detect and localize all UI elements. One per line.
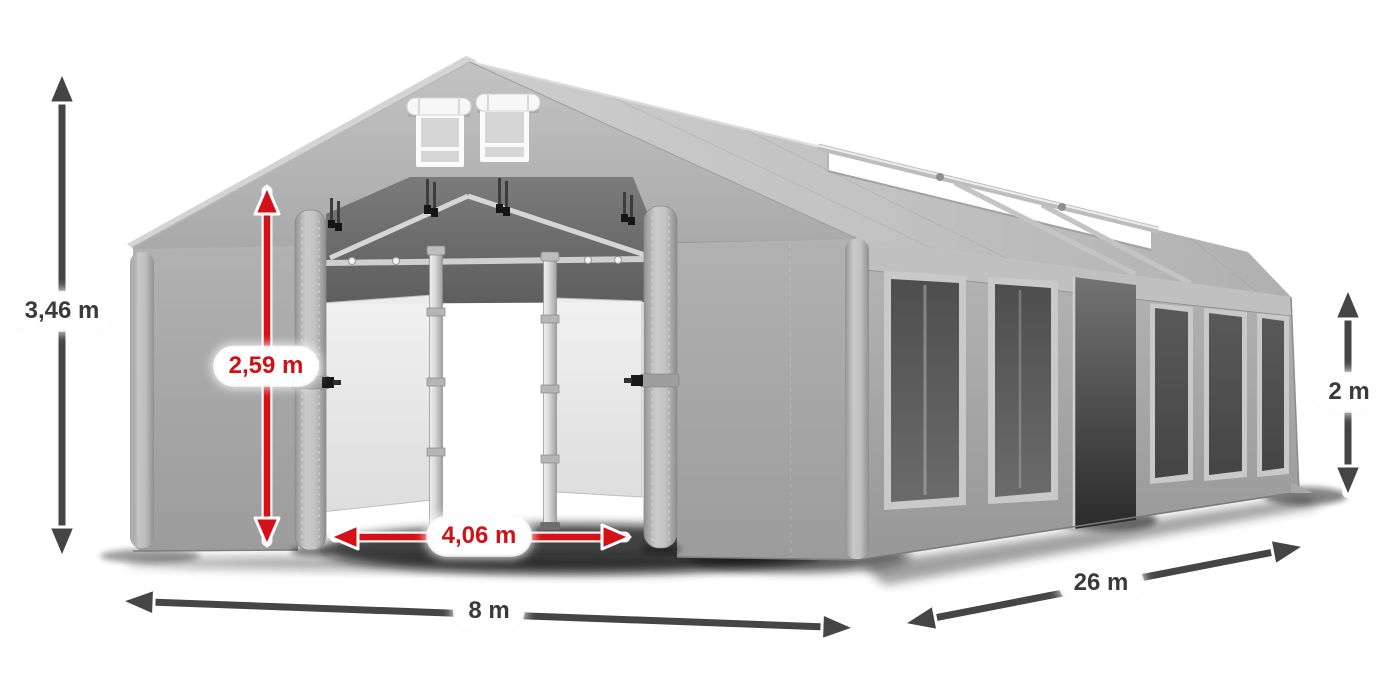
corner-pillar	[845, 239, 869, 559]
dimension-label-side-height: 2 m	[1315, 374, 1382, 410]
roof-vent-left	[407, 98, 471, 167]
front-opening	[326, 177, 648, 304]
strap-buckle	[631, 375, 643, 386]
vent-roller	[476, 94, 540, 111]
dimension-label-length: 26 m	[1061, 565, 1142, 601]
vent-roller	[407, 98, 471, 115]
tent-dimensions-diagram: 3,46 m 2,59 m 4,06 m 8 m 26 m 2 m	[0, 0, 1400, 700]
dimension-label-door-height: 2,59 m	[216, 348, 317, 384]
side-wall-opening	[1074, 277, 1136, 529]
front-wall-left	[130, 246, 298, 552]
interior-purlin	[326, 259, 648, 263]
strap-buckle	[322, 377, 334, 388]
dimension-label-width: 8 m	[455, 593, 522, 629]
tent-illustration	[0, 0, 1400, 700]
dimension-label-total-height: 3,46 m	[12, 293, 113, 329]
front-wall-right	[677, 239, 858, 560]
door-panel-right	[556, 298, 642, 497]
dimension-label-door-width: 4,06 m	[429, 518, 530, 554]
door-panel-left	[322, 295, 432, 512]
